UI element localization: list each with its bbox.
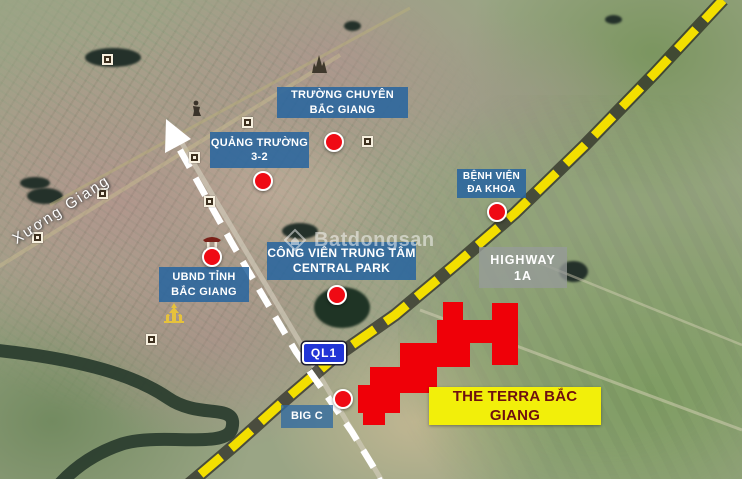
label-line: 1A <box>514 268 532 284</box>
label-line: CÔNG VIÊN TRUNG TÂM <box>267 246 415 261</box>
map-canvas: Xương Giang TRƯỜNG CHUYÊN BẮC GIANG QUẢN… <box>0 0 742 479</box>
marker-quang-truong <box>253 171 273 191</box>
marker-ubnd <box>202 247 222 267</box>
poi-marker-icon <box>242 117 253 128</box>
label-line: BẮC GIANG <box>310 103 376 117</box>
marker-truong-chuyen <box>324 132 344 152</box>
highway-sign-ql1: QL1 <box>302 342 346 364</box>
sign-text: QL1 <box>311 346 337 360</box>
label-line: BẮC GIANG <box>171 285 237 299</box>
poi-marker-icon <box>102 54 113 65</box>
label-line: THE TERRA BẮC GIANG <box>429 387 601 425</box>
label-the-terra-bac-giang: THE TERRA BẮC GIANG <box>429 387 601 425</box>
label-benh-vien-da-khoa: BỆNH VIỆN ĐA KHOA <box>457 169 526 198</box>
monument-icon <box>309 53 331 73</box>
poi-marker-icon <box>204 196 215 207</box>
label-line: QUẢNG TRƯỜNG <box>211 136 308 150</box>
marker-big-c <box>333 389 353 409</box>
poi-marker-icon <box>146 334 157 345</box>
label-cong-vien-trung-tam: CÔNG VIÊN TRUNG TÂM CENTRAL PARK <box>267 242 416 280</box>
label-big-c: BIG C <box>281 405 333 428</box>
pagoda-icon <box>162 303 186 323</box>
marker-cong-vien <box>327 285 347 305</box>
label-line: 3-2 <box>251 150 268 164</box>
label-line: BIG C <box>291 409 323 423</box>
label-line: UBND TỈNH <box>172 270 235 284</box>
label-line: TRƯỜNG CHUYÊN <box>291 88 394 102</box>
label-quang-truong-3-2: QUẢNG TRƯỜNG 3-2 <box>210 132 309 168</box>
map-overlay-graphics <box>0 0 742 479</box>
road-line <box>180 140 385 479</box>
label-highway-1a: HIGHWAY 1A <box>479 247 567 288</box>
label-line: ĐA KHOA <box>467 184 515 197</box>
label-line: CENTRAL PARK <box>293 261 390 276</box>
marker-benh-vien <box>487 202 507 222</box>
label-truong-chuyen-bac-giang: TRƯỜNG CHUYÊN BẮC GIANG <box>277 87 408 118</box>
poi-marker-icon <box>189 152 200 163</box>
statue-icon <box>190 100 203 116</box>
poi-marker-icon <box>362 136 373 147</box>
label-ubnd-tinh-bac-giang: UBND TỈNH BẮC GIANG <box>159 267 249 302</box>
river <box>0 350 233 479</box>
label-line: BỆNH VIỆN <box>463 171 520 184</box>
label-line: HIGHWAY <box>490 252 556 268</box>
